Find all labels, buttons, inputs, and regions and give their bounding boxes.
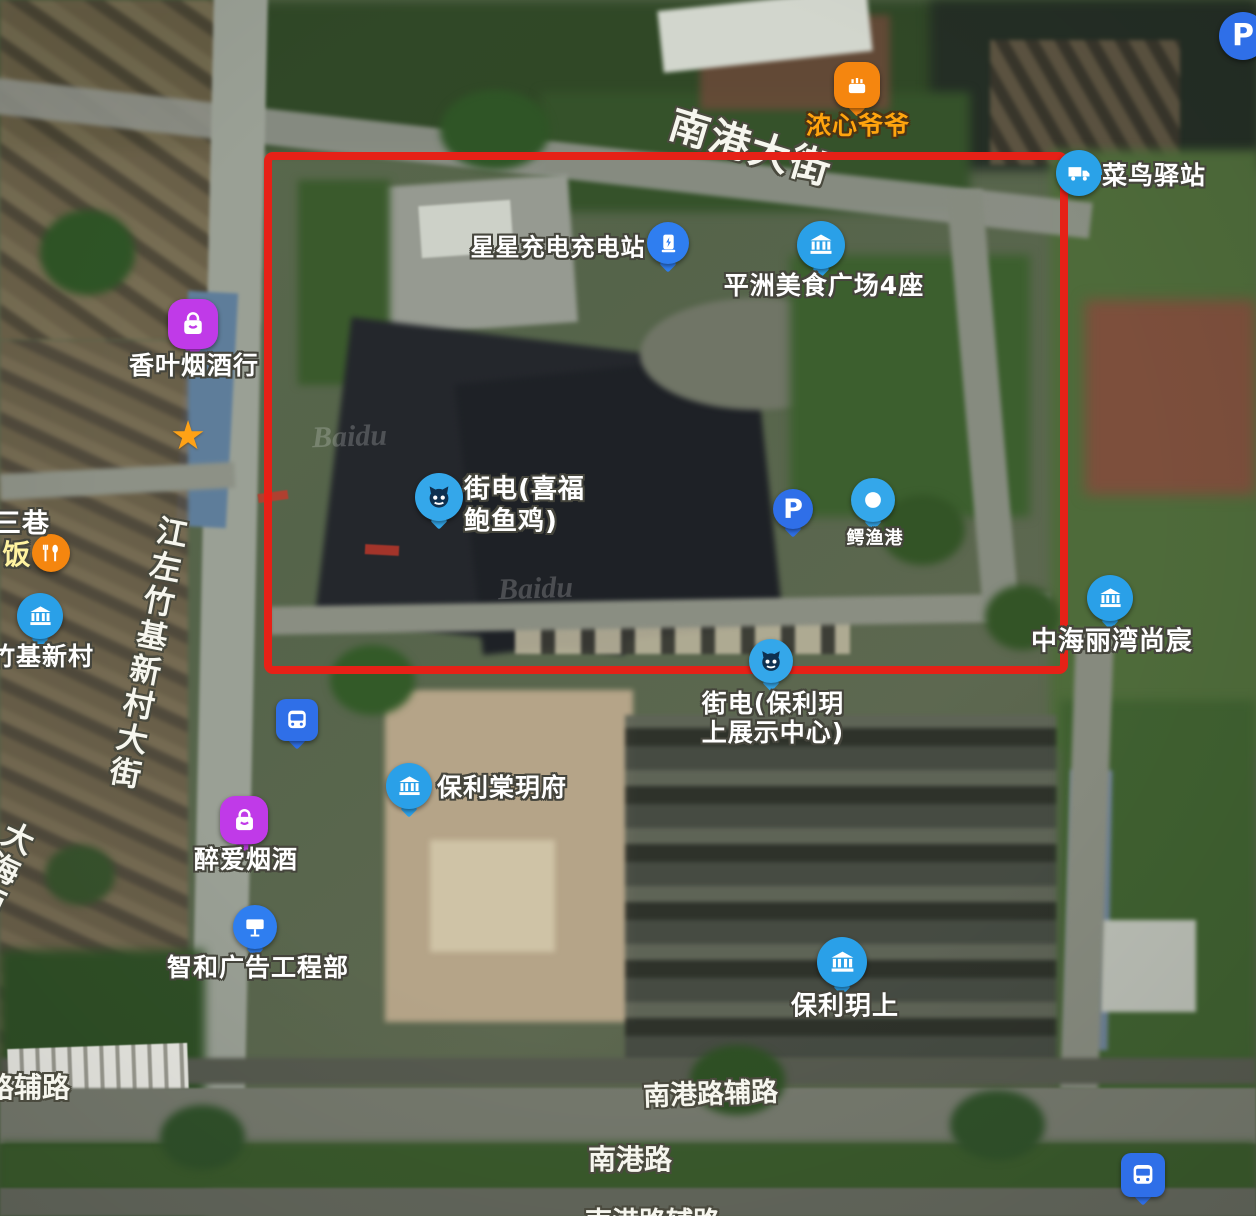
building-icon [817,937,867,987]
poi-marker-eyugang[interactable] [851,478,895,522]
ev-charger-icon [647,222,689,264]
poi-marker-baoli-tangyuefu[interactable] [386,763,432,809]
cat-icon [749,639,793,683]
poi-marker-zhuji-xincun[interactable] [17,593,63,639]
poi-marker-zhihe-ad[interactable] [233,905,277,949]
poi-label-zhonghai-liwan[interactable]: 中海丽湾尚宸 [1031,621,1193,658]
road-label-nangang-lu-fulu-bottom: 南港路辅路 [585,1200,720,1216]
road-label-nangang-lu-fulu: 南港路辅路 [642,1070,778,1114]
building-icon [17,593,63,639]
building-icon [386,763,432,809]
poi-label-sanxiang[interactable]: 三巷 [0,502,50,541]
parking-marker[interactable]: P [1219,12,1256,60]
bus-stop-marker[interactable] [276,699,318,741]
shopping-bag-icon [220,796,268,844]
poi-label-zuiai-tobacco[interactable]: 醉爱烟酒 [194,840,298,876]
bus-stop-marker[interactable] [1121,1153,1165,1197]
building-icon [1087,575,1133,621]
billboard-icon [233,905,277,949]
poi-marker-xingxing-charging[interactable] [647,222,689,264]
parking-marker[interactable]: P [773,489,813,529]
satellite-map-view[interactable]: Baidu Baidu 南港大街 江左竹基新村大街 大海西 路辅路 南港路辅路 … [0,0,1256,1216]
poi-marker-jiedian-baoliyue[interactable] [749,639,793,683]
shopping-bag-icon [168,299,218,349]
dot-icon [851,478,895,522]
poi-label-xingxing-charging[interactable]: 星星充电充电站 [471,228,646,263]
bus-icon [1121,1153,1165,1197]
parking-icon: P [773,489,813,529]
poi-label-zhuji-xincun[interactable]: 竹基新村 [0,637,94,673]
poi-marker-baoli-yueshang[interactable] [817,937,867,987]
poi-label-jiedian-baoliyue-line2[interactable]: 上展示中心) [702,713,844,749]
poi-label-nongxin-yeye[interactable]: 浓心爷爷 [806,106,910,142]
poi-label-xiangye-tobacco[interactable]: 香叶烟酒行 [129,346,259,382]
poi-marker-zhonghai-liwan[interactable] [1087,575,1133,621]
poi-label-baoli-tangyuefu[interactable]: 保利棠玥府 [437,768,567,804]
poi-label-eyugang[interactable]: 鳄渔港 [847,524,904,550]
building-icon [797,221,845,269]
poi-marker-pingzhou-food-plaza[interactable] [797,221,845,269]
cake-icon [834,62,880,108]
poi-marker-cainiao-yizhan[interactable] [1056,150,1102,196]
poi-marker-xiangye-tobacco[interactable] [168,299,218,349]
poi-label-baoli-yueshang[interactable]: 保利玥上 [791,986,899,1023]
road-label-lufulu: 路辅路 [0,1066,70,1106]
cat-icon [415,473,463,521]
truck-icon [1056,150,1102,196]
poi-label-pingzhou-food-plaza[interactable]: 平洲美食广场4座 [724,266,924,302]
parking-icon: P [1219,12,1256,60]
poi-label-cainiao-yizhan[interactable]: 菜鸟驿站 [1102,156,1206,192]
favorite-star-icon[interactable]: ★ [170,416,206,456]
poi-marker-zuiai-tobacco[interactable] [220,796,268,844]
bus-icon [276,699,318,741]
poi-label-zhihe-ad[interactable]: 智和广告工程部 [167,948,349,984]
poi-marker-nongxin-yeye[interactable] [834,62,880,108]
poi-marker-jiedian-xifu[interactable] [415,473,463,521]
road-label-nangang-lu: 南港路 [588,1138,672,1178]
poi-label-jiedian-xifu-line2[interactable]: 鲍鱼鸡) [464,501,558,538]
